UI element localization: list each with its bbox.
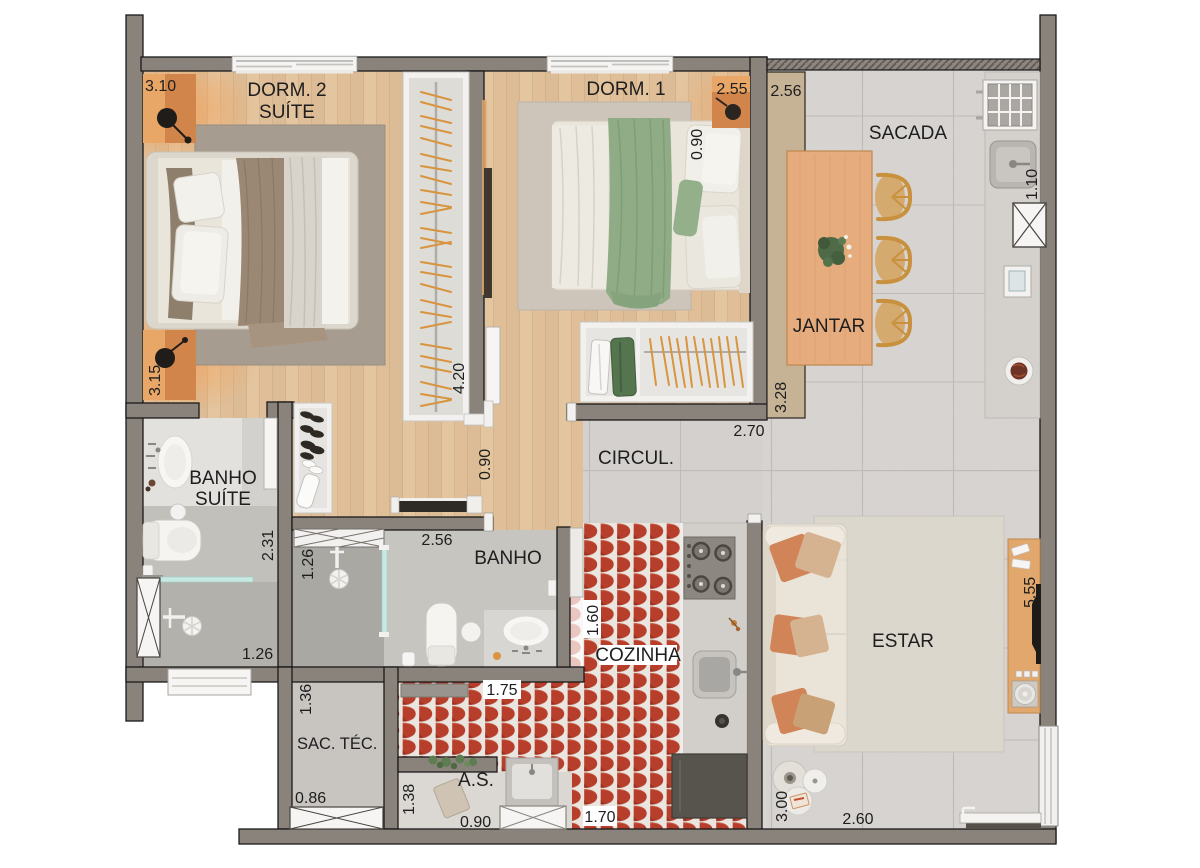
- svg-text:1.60: 1.60: [585, 605, 602, 636]
- svg-text:2.60: 2.60: [842, 811, 873, 828]
- svg-text:0.86: 0.86: [295, 790, 326, 807]
- svg-text:SUÍTE: SUÍTE: [259, 102, 315, 123]
- svg-text:SAC. TÉC.: SAC. TÉC.: [297, 734, 377, 753]
- svg-text:2.55: 2.55: [716, 81, 747, 98]
- svg-text:3.00: 3.00: [774, 791, 791, 822]
- svg-text:BANHO: BANHO: [474, 548, 542, 569]
- svg-text:1.70: 1.70: [584, 809, 615, 826]
- svg-text:1.75: 1.75: [486, 682, 517, 699]
- svg-text:A.S.: A.S.: [458, 770, 494, 791]
- svg-text:0.90: 0.90: [460, 814, 491, 831]
- svg-text:1.26: 1.26: [242, 646, 273, 663]
- svg-text:2.70: 2.70: [733, 423, 764, 440]
- svg-text:3.15: 3.15: [147, 365, 164, 396]
- svg-text:5.55: 5.55: [1022, 577, 1039, 608]
- svg-text:3.28: 3.28: [773, 382, 790, 413]
- svg-text:JANTAR: JANTAR: [793, 316, 865, 337]
- svg-text:2.56: 2.56: [421, 532, 452, 549]
- svg-text:1.26: 1.26: [300, 549, 317, 580]
- svg-text:SUÍTE: SUÍTE: [195, 489, 251, 510]
- svg-text:2.56: 2.56: [770, 83, 801, 100]
- svg-text:ESTAR: ESTAR: [872, 631, 934, 652]
- svg-text:DORM. 2: DORM. 2: [247, 80, 326, 101]
- svg-text:COZINHA: COZINHA: [595, 645, 681, 666]
- svg-text:SACADA: SACADA: [869, 123, 947, 144]
- svg-text:0.90: 0.90: [477, 449, 494, 480]
- svg-text:1.10: 1.10: [1024, 169, 1041, 200]
- svg-text:2.31: 2.31: [260, 530, 277, 561]
- svg-text:CIRCUL.: CIRCUL.: [598, 448, 674, 469]
- svg-text:3.10: 3.10: [145, 78, 176, 95]
- svg-text:1.36: 1.36: [298, 684, 315, 715]
- svg-text:DORM. 1: DORM. 1: [586, 79, 665, 100]
- svg-text:0.90: 0.90: [689, 129, 706, 160]
- svg-text:1.38: 1.38: [401, 784, 418, 815]
- svg-text:BANHO: BANHO: [189, 468, 257, 489]
- svg-text:4.20: 4.20: [451, 363, 468, 394]
